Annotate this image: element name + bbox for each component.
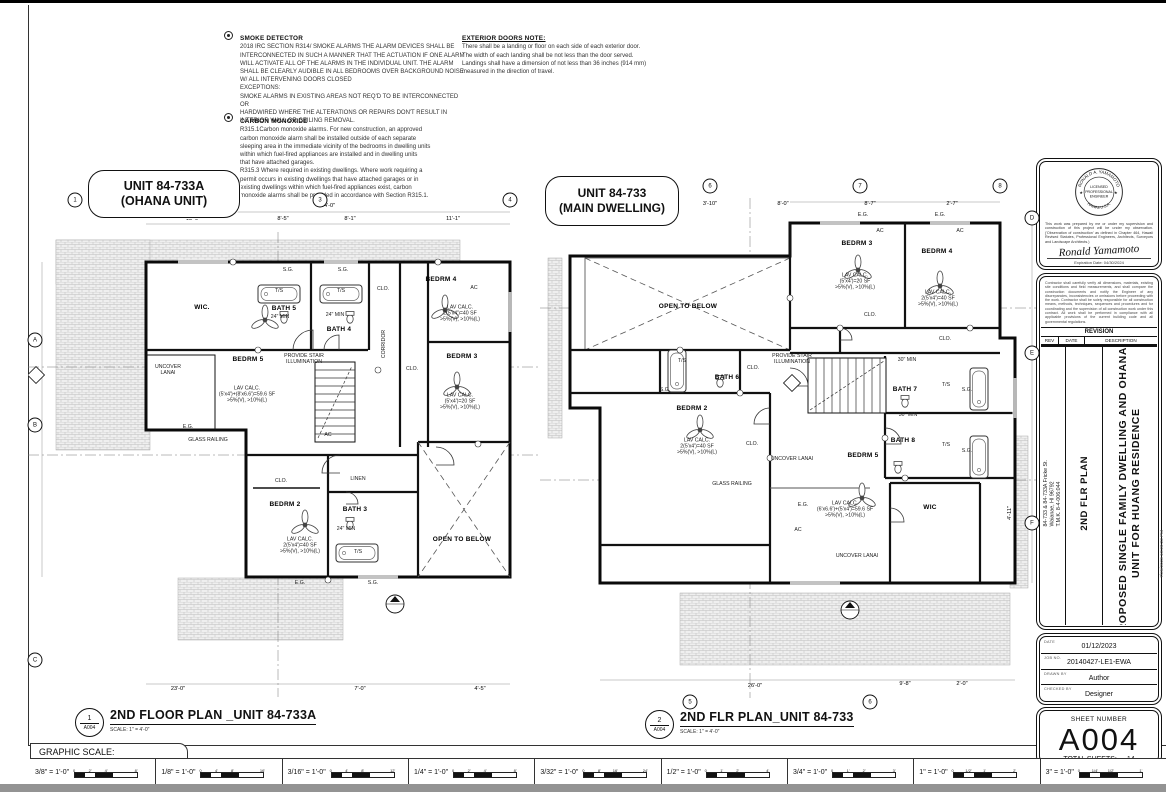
room-label: BATH 3 <box>343 507 368 513</box>
sheet-number: A004 <box>1041 723 1157 756</box>
room-label: T/S <box>337 288 345 294</box>
room-label: T/S <box>942 382 950 388</box>
view-sheet: A004 <box>654 726 666 733</box>
room-label: PROVIDE STAIR ILLUMINATION <box>772 353 812 365</box>
graphic-scale-strip: 3/8" = 1'-0"02'4'8'1/8" = 1'-0"04'8'16'3… <box>30 758 1166 786</box>
sheet-border <box>28 745 1166 746</box>
room-label: BEDRM 2 <box>676 406 707 412</box>
grid-bubble: 8 <box>993 179 1008 194</box>
scale-label: 3/16" = 1'-0" <box>288 769 326 776</box>
scale-label: 1/4" = 1'-0" <box>414 769 448 776</box>
scale-ruler: 01'2'3' <box>832 767 894 779</box>
scale-entry: 3/4" = 1'-0"01'2'3' <box>788 759 914 786</box>
titleblock-info-row: DATE01/12/2023 <box>1041 638 1157 654</box>
room-label: LAV CALC. 2(5'x4')=40 SF >5%(V), >10%(L) <box>280 537 320 556</box>
dimension-label: 4'-5" <box>474 686 485 692</box>
dimension-label: 7'-0" <box>354 686 365 692</box>
room-label: BEDRM 5 <box>847 453 878 459</box>
room-label: AC <box>470 285 477 291</box>
grid-bubble: D <box>1025 211 1040 226</box>
room-label: T/S <box>275 288 283 294</box>
rev-col: DESCRIPTION <box>1085 337 1157 344</box>
dimension-label: 8'-1" <box>344 216 355 222</box>
room-label: E.G. <box>858 212 868 218</box>
bottom-screen-bar <box>0 784 1166 792</box>
plot-timestamp: 7/26/2023 10:20:22 PM <box>1159 530 1164 578</box>
pe-stamp-seal: RONALD A. YAMAMOTO HAWAII U.S.A. LICENSE… <box>1041 163 1157 221</box>
grid-bubble: E <box>1025 346 1040 361</box>
scale-ruler: 08'16'24' <box>583 767 645 779</box>
grid-bubble: F <box>1025 516 1040 531</box>
room-label: CLO. <box>746 441 758 447</box>
scale-entry: 3/16" = 1'-0"04'8'12' <box>283 759 409 786</box>
room-label: OPEN TO BELOW <box>659 304 717 310</box>
floor-plan-ohana: WIC.T/ST/SBATH 524" MIN24" MINBATH 4S.G.… <box>28 192 538 712</box>
scale-label: 1" = 1'-0" <box>919 769 947 776</box>
room-label: S.G. <box>368 580 378 586</box>
info-label: DATE <box>1044 640 1055 644</box>
scale-label: 3" = 1'-0" <box>1046 769 1074 776</box>
room-label: AC <box>794 527 801 533</box>
room-label: BATH 5 <box>272 306 297 312</box>
info-value: 20140427-LE1-EWA <box>1067 656 1131 666</box>
room-label: AC <box>876 228 883 234</box>
dimension-label: 9'-8" <box>899 681 910 687</box>
scale-entry: 1/8" = 1'-0"04'8'16' <box>156 759 282 786</box>
grid-bubble: C <box>28 653 43 668</box>
room-label: CLO. <box>747 365 759 371</box>
smoke-note-title: SMOKE DETECTOR <box>240 35 303 42</box>
titleblock-info-row: DRAWN BYAuthor <box>1041 670 1157 686</box>
room-label: LAV CALC. (5'x4')=20 SF >5%(V), >10%(L) <box>440 393 480 412</box>
titleblock-info-box: DATE01/12/2023JOB NO.20140427-LE1-EWADRA… <box>1036 633 1162 705</box>
info-label: JOB NO. <box>1044 656 1061 660</box>
room-label: LAV CALC. (6'x6.6')+(5'x4')=59.6 SF >5%(… <box>817 501 873 520</box>
dimension-label: 8'-0" <box>777 201 788 207</box>
room-label: OPEN TO BELOW <box>433 537 491 543</box>
room-label: CLO. <box>864 312 876 318</box>
room-label: T/S <box>678 358 686 364</box>
info-value: 01/12/2023 <box>1081 640 1116 650</box>
room-label: UNCOVER LANAI <box>836 553 878 559</box>
rev-col: DATE <box>1059 337 1085 344</box>
titleblock-info-row: JOB NO.20140427-LE1-EWA <box>1041 654 1157 670</box>
sheet-name: 2ND FLR PLAN <box>1079 456 1090 531</box>
scale-ruler: 02'4'8' <box>74 767 136 779</box>
room-label: S.G. <box>283 267 293 273</box>
room-label: BEDRM 4 <box>921 249 952 255</box>
room-label: GLASS RAILING <box>712 481 752 487</box>
dimension-label: 26'-0" <box>748 683 762 689</box>
grid-bubble: 1 <box>68 193 83 208</box>
room-label: BATH 8 <box>891 438 916 444</box>
room-label: 24" MIN <box>337 526 356 532</box>
room-label: LAV CALC. 2(5'x4')=40 SF >5%(V), >10%(L) <box>677 438 717 457</box>
scale-entry: 1" = 1'-0"01/2'1'2' <box>914 759 1040 786</box>
view-reference-bubble: 1 A004 <box>75 708 104 737</box>
room-label: WIC. <box>194 305 209 311</box>
dimension-label: 4'-11" <box>1007 506 1013 520</box>
scale-ruler: 01/2'1'2' <box>953 767 1015 779</box>
scale-label: 1/2" = 1'-0" <box>667 769 701 776</box>
room-label: LINEN <box>350 476 365 482</box>
room-label: LAV CALC. (5'x4')+(8'x6.6')=59.6 SF >5%(… <box>219 386 275 405</box>
scale-ruler: 04'8'16' <box>200 767 262 779</box>
plan1-title-text: 2ND FLOOR PLAN _UNIT 84-733A <box>110 708 316 725</box>
project-address: 84-733 & 84-733A Fricke St. Waianae, HI … <box>1043 460 1063 527</box>
info-value: Designer <box>1085 688 1113 698</box>
revision-header: REV DATE DESCRIPTION <box>1041 337 1157 345</box>
room-label: BEDRM 3 <box>446 354 477 360</box>
scale-label: 3/4" = 1'-0" <box>793 769 827 776</box>
scale-entry: 3" = 1'-0"01/4'1/2'1' <box>1041 759 1166 786</box>
project-title: PROPOSED SINGLE FAMILY DWELLING AND OHAN… <box>1117 347 1143 625</box>
room-label: BEDRM 4 <box>425 277 456 283</box>
dimension-label: 2'-7" <box>946 201 957 207</box>
rev-col: REV <box>1041 337 1059 344</box>
svg-text:PROFESSIONAL: PROFESSIONAL <box>1085 190 1113 194</box>
dimension-label: 3'-10" <box>703 201 717 207</box>
room-label: WIC <box>923 505 936 511</box>
scale-entry: 3/8" = 1'-0"02'4'8' <box>30 759 156 786</box>
plan1-labels: WIC.T/ST/SBATH 524" MIN24" MINBATH 4S.G.… <box>28 192 538 712</box>
room-label: BATH 7 <box>893 387 918 393</box>
view-number: 1 <box>80 715 99 724</box>
scale-label: 3/8" = 1'-0" <box>35 769 69 776</box>
graphic-scale-label: GRAPHIC SCALE: <box>30 743 188 759</box>
scale-entry: 1/2" = 1'-0"01'2'4' <box>662 759 788 786</box>
dimension-label: 23'-0" <box>171 686 185 692</box>
top-screen-bar <box>0 0 1166 3</box>
room-label: E.G. <box>935 212 945 218</box>
scale-ruler: 02'4'8' <box>453 767 515 779</box>
room-label: BEDRM 3 <box>841 241 872 247</box>
exterior-note-title: EXTERIOR DOORS NOTE: <box>462 35 546 42</box>
dimension-label: 8'-5" <box>277 216 288 222</box>
room-label: AC <box>324 432 331 438</box>
room-label: CLO. <box>406 366 418 372</box>
plan2-labels: E.G.E.G.ACACBEDRM 3LAV CALC. (5'x4')=20 … <box>540 178 1040 708</box>
unit-label-main: UNIT 84-733 (MAIN DWELLING) <box>545 176 679 226</box>
grid-bubble: 4 <box>503 193 518 208</box>
room-label: E.G. <box>183 424 193 430</box>
room-label: BATH 4 <box>327 327 352 333</box>
carbon-note-body: R315.1Carbon monoxide alarms. For new co… <box>240 126 468 200</box>
view-reference-bubble: 2 A004 <box>645 710 674 739</box>
carbon-monoxide-icon <box>224 113 233 122</box>
scale-label: 1/8" = 1'-0" <box>161 769 195 776</box>
plan2-title-text: 2ND FLR PLAN_UNIT 84-733 <box>680 710 854 727</box>
grid-bubble: A <box>28 333 43 348</box>
room-label: S.G. <box>962 448 972 454</box>
carbon-note-title: CARBON MONOXIDE <box>240 118 308 125</box>
room-label: AC <box>956 228 963 234</box>
room-label: CLO. <box>275 478 287 484</box>
room-label: 24" MIN <box>271 314 290 320</box>
svg-text:★: ★ <box>1114 190 1118 195</box>
room-label: BATH 6 <box>715 375 740 381</box>
room-label: PROVIDE STAIR ILLUMINATION <box>284 353 324 365</box>
titleblock-titles: 84-733 & 84-733A Fricke St. Waianae, HI … <box>1041 347 1157 625</box>
room-label: T/S <box>942 442 950 448</box>
room-label: BEDRM 2 <box>269 502 300 508</box>
scale-label: 3/32" = 1'-0" <box>540 769 578 776</box>
general-note: Contractor shall carefully verify all di… <box>1041 278 1157 327</box>
room-label: 30" MIN <box>898 357 917 363</box>
room-label: 24" MIN <box>326 312 345 318</box>
room-label: 30" MIN <box>899 412 918 418</box>
info-label: CHECKED BY <box>1044 687 1072 691</box>
revision-title: REVISION <box>1041 327 1157 337</box>
room-label: LAV CALC. 2(5'x4')=40 SF >5%(V), >10%(L) <box>918 290 958 309</box>
info-value: Author <box>1089 672 1110 682</box>
plan2-scale: SCALE: 1" = 4'-0" <box>680 727 854 735</box>
room-label: CORRIDOR <box>381 330 387 358</box>
room-label: S.G. <box>962 387 972 393</box>
plan1-scale: SCALE: 1" = 4'-0" <box>110 725 316 733</box>
titleblock-main-box: Contractor shall carefully verify all di… <box>1036 273 1162 630</box>
grid-bubble: 6 <box>703 179 718 194</box>
room-label: CLO. <box>377 286 389 292</box>
exterior-doors-note: EXTERIOR DOORS NOTE: There shall be a la… <box>462 27 667 84</box>
scale-ruler: 04'8'12' <box>331 767 393 779</box>
engineer-stamp-box: RONALD A. YAMAMOTO HAWAII U.S.A. LICENSE… <box>1036 158 1162 270</box>
smoke-detector-icon <box>224 31 233 40</box>
room-label: UNCOVER LANAI <box>155 364 181 376</box>
view-sheet: A004 <box>84 724 96 731</box>
dimension-label: 2'-0" <box>956 681 967 687</box>
room-label: UNCOVER LANAI <box>771 456 813 462</box>
svg-text:LICENSED: LICENSED <box>1090 185 1108 189</box>
scale-ruler: 01'2'4' <box>706 767 768 779</box>
scale-entry: 3/32" = 1'-0"08'16'24' <box>535 759 661 786</box>
grid-bubble: 6 <box>863 695 878 710</box>
room-label: S.G. <box>660 387 670 393</box>
plan1-title: 1 A004 2ND FLOOR PLAN _UNIT 84-733A SCAL… <box>75 708 316 737</box>
dimension-label: 11'-1" <box>446 216 460 222</box>
floor-plan-main: E.G.E.G.ACACBEDRM 3LAV CALC. (5'x4')=20 … <box>540 178 1040 708</box>
view-number: 2 <box>650 717 669 726</box>
exterior-note-body: There shall be a landing or floor on eac… <box>462 43 667 76</box>
stamp-certification-text: This work was prepared by me or under my… <box>1041 221 1157 244</box>
room-label: T/S <box>354 549 362 555</box>
license-expiration: Expiration Date: 04/30/2024 <box>1047 258 1151 265</box>
grid-bubble: 3 <box>313 193 328 208</box>
scale-entry: 1/4" = 1'-0"02'4'8' <box>409 759 535 786</box>
plan2-title: 2 A004 2ND FLR PLAN_UNIT 84-733 SCALE: 1… <box>645 710 854 739</box>
room-label: E.G. <box>295 580 305 586</box>
room-label: BEDRM 5 <box>232 357 263 363</box>
grid-bubble: B <box>28 418 43 433</box>
room-label: LAV CALC. 2(5'x4')=40 SF >5%(V), >10%(L) <box>440 305 480 324</box>
drawing-sheet: SMOKE DETECTOR 2018 IRC SECTION R314/ SM… <box>0 0 1166 792</box>
room-label: E.G. <box>798 502 808 508</box>
grid-bubble: 7 <box>853 179 868 194</box>
room-label: CLO. <box>939 336 951 342</box>
dimension-label: 8'-7" <box>864 201 875 207</box>
scale-ruler: 01/4'1/2'1' <box>1079 767 1141 779</box>
room-label: GLASS RAILING <box>188 437 228 443</box>
titleblock-info-row: CHECKED BYDesigner <box>1041 685 1157 700</box>
svg-text:★: ★ <box>1079 190 1083 195</box>
grid-bubble: 5 <box>683 695 698 710</box>
svg-text:ENGINEER: ENGINEER <box>1090 195 1109 199</box>
info-label: DRAWN BY <box>1044 672 1067 676</box>
room-label: LAV CALC. (5'x4')=20 SF >5%(V), >10%(L) <box>835 273 875 292</box>
room-label: S.G. <box>338 267 348 273</box>
unit-label-ohana: UNIT 84-733A (OHANA UNIT) <box>88 170 240 218</box>
